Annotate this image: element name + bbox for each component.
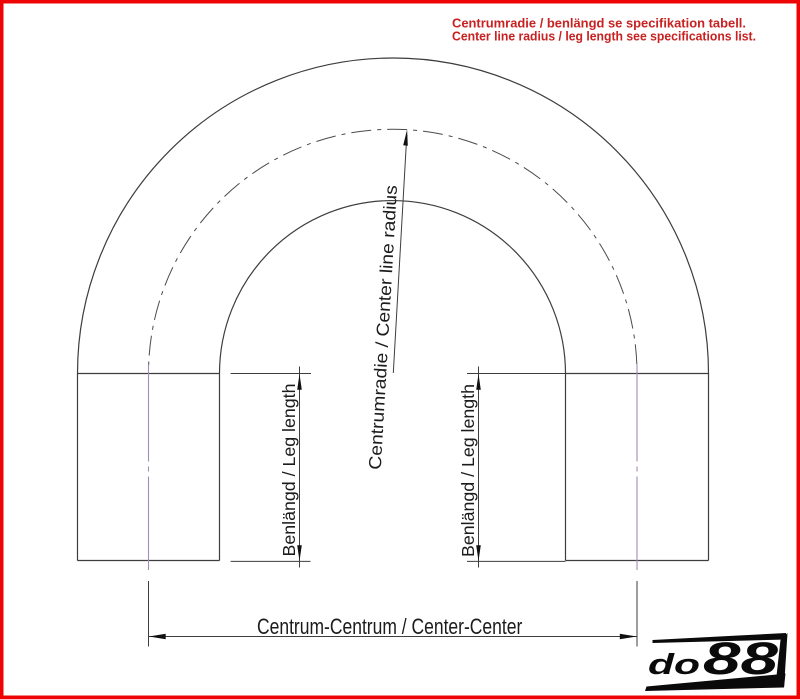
- svg-text:Center line radius / leg lengt: Center line radius / leg length see spec…: [452, 29, 756, 44]
- svg-text:Benlängd / Leg length: Benlängd / Leg length: [279, 384, 299, 557]
- svg-text:do: do: [648, 649, 700, 681]
- svg-text:88: 88: [703, 633, 779, 684]
- svg-text:Centrum-Centrum / Center-Cente: Centrum-Centrum / Center-Center: [257, 614, 522, 639]
- svg-text:Benlängd / Leg length: Benlängd / Leg length: [458, 384, 478, 557]
